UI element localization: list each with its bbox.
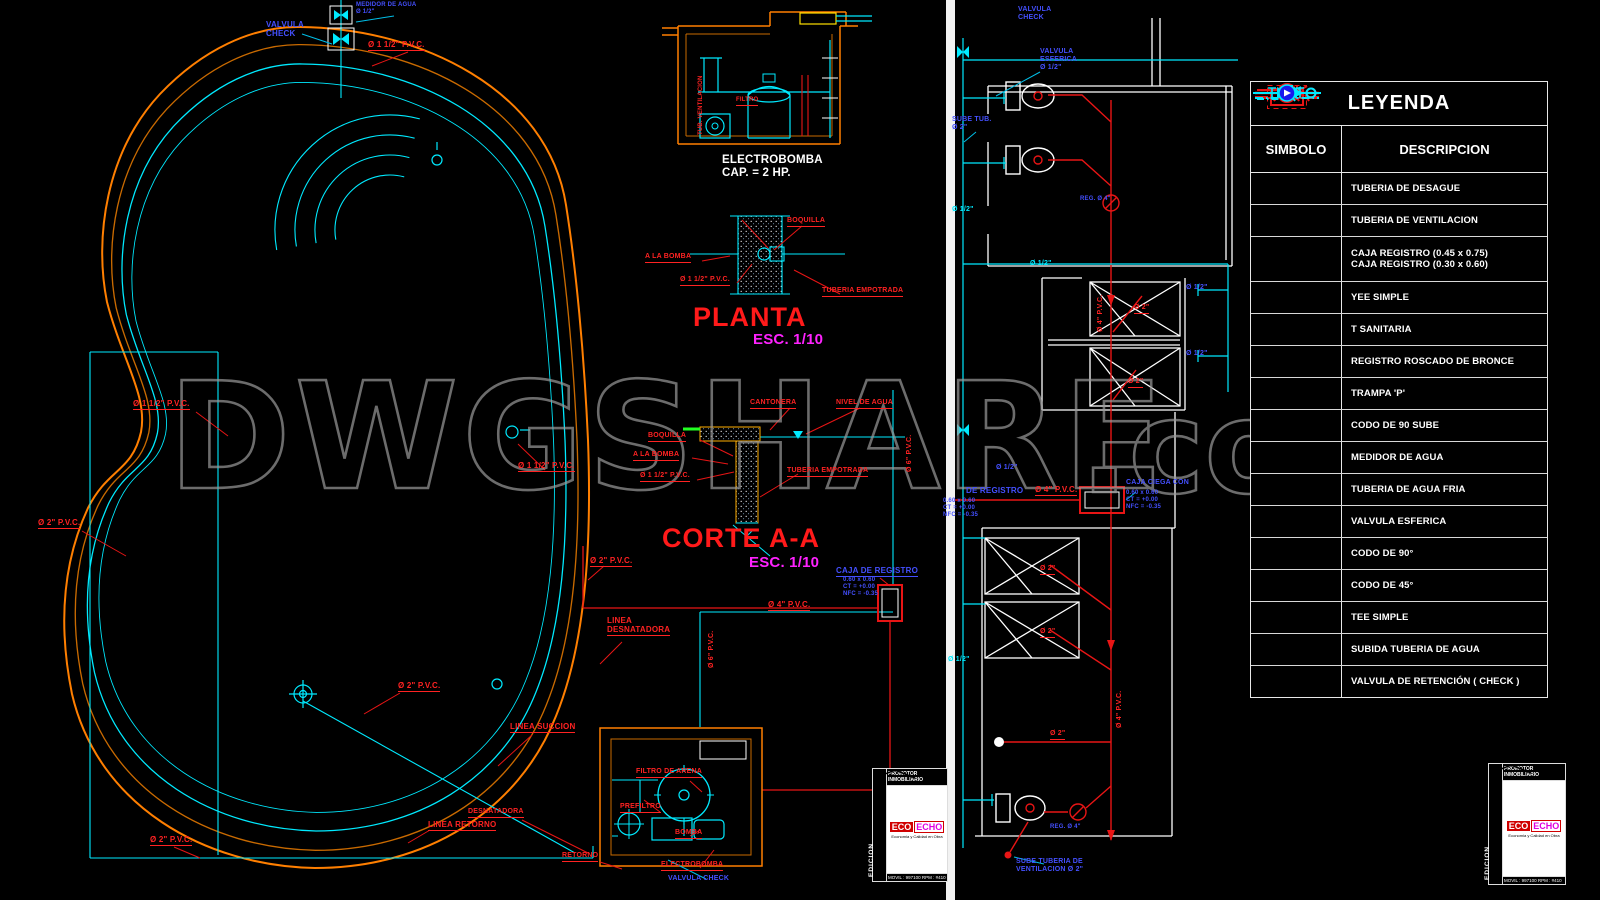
label-d12-d: Ø 1/2" (1186, 350, 1208, 358)
label-pvc2-left: Ø 2" P.V.C. (38, 518, 80, 529)
label-caja-registro-detalle: 0.60 x 0.60 CT = +0.00 NFC = -0.35 (843, 577, 878, 598)
label-nivel-agua: NIVEL DE AGUA (836, 399, 893, 409)
legend-row: CODO DE 90 SUBE (1251, 410, 1547, 442)
corte-title: CORTE A-A (662, 523, 820, 554)
title-block-right: EDICION PROMOTOR INMOBILIARIO ECOECHO Ec… (1488, 763, 1566, 885)
label-d12-a: Ø 1/2" (952, 206, 974, 214)
label-d12-f: Ø 1/2" (948, 656, 970, 664)
title-block-edition-strip: EDICION (1489, 764, 1503, 884)
legend-row: SUBIDA TUBERIA DE AGUA (1251, 634, 1547, 666)
label-pvc4-vert-b: Ø 4" P.V.C. (1116, 691, 1124, 728)
label-a-la-bomba: A LA BOMBA (645, 253, 691, 263)
label-d2-d: Ø 2" (1040, 628, 1055, 638)
label-pvc4-mid: Ø 4" P.V.C. (1035, 485, 1077, 496)
legend-desc: TRAMPA 'P' (1351, 388, 1547, 399)
legend-row: TRAMPA 'P' (1251, 378, 1547, 410)
legend-symbol-valvula-retencion-icon (1251, 82, 1323, 104)
legend-desc: TUBERIA DE DESAGUE (1351, 183, 1547, 194)
legend-row: REGISTRO ROSCADO DE BRONCE (1251, 346, 1547, 378)
legend-row: YEE SIMPLE (1251, 282, 1547, 314)
label-d2-b: Ø 2" (1128, 378, 1143, 388)
logo-roof-icon (873, 769, 917, 779)
legend-desc: TUBERIA DE VENTILACION (1351, 215, 1547, 226)
legend-desc: YEE SIMPLE (1351, 292, 1547, 303)
corte-escala: ESC. 1/10 (749, 554, 819, 571)
legend-row: T SANITARIA (1251, 314, 1547, 346)
label-linea-succion: LINEA SUCCION (510, 722, 575, 733)
label-d12-c: Ø 1/2" (1186, 284, 1208, 292)
label-cantonera: CANTONERA (750, 399, 796, 409)
legend-row: TUBERIA DE VENTILACION (1251, 205, 1547, 237)
label-a-la-bomba-corte: A LA BOMBA (633, 451, 679, 461)
legend-header-row: SIMBOLO DESCRIPCION (1251, 126, 1547, 173)
logo-echo: ECHO (1531, 820, 1561, 832)
legend-row: CAJA REGISTRO (0.45 x 0.75)CAJA REGISTRO… (1251, 237, 1547, 282)
sheet-divider (946, 0, 955, 900)
logo-eco: ECO (890, 822, 914, 832)
title-block-contact: MOVIL : 997100 RPM : #410 (1503, 876, 1565, 884)
label-valvula-esferica: VALVULA ESFERICA Ø 1/2" (1040, 48, 1077, 72)
label-boquilla-planta: BOQUILLA (787, 217, 825, 227)
legend-row: TUBERIA DE AGUA FRIA (1251, 474, 1547, 506)
label-caja-ciega-detalle: 0.60 x 0.60 CT = +0.00 NFC = -0.35 (1126, 490, 1161, 511)
edition-label: EDICION (868, 843, 875, 877)
legend-desc: VALVULA ESFERICA (1351, 516, 1547, 527)
label-retorno: RETORNO (562, 852, 598, 862)
legend-desc: MEDIDOR DE AGUA (1351, 452, 1547, 463)
planta-detail (730, 216, 790, 294)
label-reg4-top: REG. Ø 4" (1080, 196, 1111, 203)
logo-roof-icon (1489, 764, 1533, 774)
legend-desc: VALVULA DE RETENCIÓN ( CHECK ) (1351, 676, 1547, 687)
legend-row: CODO DE 90° (1251, 538, 1547, 570)
codo-sube-dot (994, 737, 1004, 747)
planta-title: PLANTA (693, 302, 807, 333)
label-filtro-seccion: FILTRO (736, 97, 758, 106)
legend-desc: CODO DE 45° (1351, 580, 1547, 591)
label-pvc112-left: Ø 1 1/2" P.V.C. (133, 399, 190, 410)
legend-desc: TEE SIMPLE (1351, 612, 1547, 623)
label-pvc112-mid: Ø 1 1/2" P.V.C. (518, 461, 575, 472)
label-caja-registro: CAJA DE REGISTRO (836, 566, 918, 577)
label-valvula-check-plan: VALVULA CHECK (668, 875, 729, 883)
label-pvc6-corte: Ø 6" P.V.C. (906, 435, 914, 472)
label-pvc112-corte: Ø 1 1/2" P.V.C. (640, 472, 690, 482)
label-linea-desnatadora: LINEA DESNATADORA (607, 616, 670, 636)
label-pvc6-drop: Ø 6" P.V.C. (708, 631, 716, 668)
title-block-left: EDICION PROMOTOR INMOBILIARIO ECOECHO Ec… (872, 768, 948, 882)
label-sube-tub: SUBE TUB. Ø 2" (952, 116, 992, 132)
legend-desc: T SANITARIA (1351, 324, 1547, 335)
label-pvc2-bottom: Ø 2" P.V.C. (150, 835, 192, 846)
label-valvula-check: VALVULA CHECK (266, 20, 304, 38)
legend-row: VALVULA DE RETENCIÓN ( CHECK ) (1251, 666, 1547, 697)
label-pvc2-right: Ø 2" P.V.C. (590, 556, 632, 567)
edition-label: EDICION (1484, 846, 1491, 880)
label-electrobomba-plan: ELECTROBOMBA (661, 861, 723, 871)
legend-desc: TUBERIA DE AGUA FRIA (1351, 484, 1547, 495)
label-tuberia-empotrada-corte: TUBERIA EMPOTRADA (787, 467, 868, 477)
logo-tagline: Economia y Calidad en Obra (1508, 833, 1559, 838)
legend-desc2: CAJA REGISTRO (0.30 x 0.60) (1351, 259, 1547, 270)
legend-table: LEYENDA SIMBOLO DESCRIPCION TUBERIA DE D… (1250, 81, 1548, 698)
logo-tagline: Economia y Calidad en Obra (891, 834, 942, 839)
label-filtro-arena: FILTRO DE ARENA (636, 768, 702, 778)
label-d12-b: Ø 1/2" (1030, 260, 1052, 268)
label-bomba: BOMBA (675, 829, 702, 839)
company-logo: ECOECHO Economia y Calidad en Obra (887, 786, 947, 873)
vent-riser-dot (1005, 852, 1012, 859)
label-medidor-agua: MEDIDOR DE AGUA Ø 1/2" (356, 2, 416, 16)
label-tuberia-empotrada-planta: TUBERIA EMPOTRADA (822, 287, 903, 297)
label-caja-ciega: CAJA CIEGA CON (1126, 479, 1189, 487)
legend-row: TUBERIA DE DESAGUE (1251, 173, 1547, 205)
pump-house-plan (600, 728, 762, 866)
label-pvc112-planta: Ø 1 1/2" P.V.C. (680, 276, 730, 286)
label-d2-a: Ø 2" (1134, 304, 1149, 314)
title-block-contact: MOVIL : 997100 RPM : #410 (887, 873, 947, 881)
legend-desc: SUBIDA TUBERIA DE AGUA (1351, 644, 1547, 655)
label-pvc2-mid: Ø 2" P.V.C. (398, 681, 440, 692)
electrobomba-title: ELECTROBOMBA CAP. = 2 HP. (722, 154, 823, 180)
label-desnatadora: DESNATADORA (468, 808, 524, 818)
watermark: DWGSHARE .com (168, 351, 1426, 523)
label-pvc4-line: Ø 4" P.V.C. (768, 600, 810, 611)
label-pvc112-top: Ø 1 1/2" P.V.C. (368, 40, 425, 51)
label-reg4-bottom: REG. Ø 4" (1050, 824, 1081, 831)
pool-steps (275, 115, 420, 250)
legend-col-descripcion: DESCRIPCION (1342, 126, 1547, 172)
planta-escala: ESC. 1/10 (753, 331, 823, 348)
legend-desc: CAJA REGISTRO (0.45 x 0.75) (1351, 248, 1547, 259)
legend-desc: CODO DE 90° (1351, 548, 1547, 559)
label-linea-retorno: LINEA RETORNO (428, 820, 496, 831)
label-de-registro: DE REGISTRO (966, 486, 1023, 495)
logo-echo: ECHO (914, 821, 944, 833)
company-logo: ECOECHO Economia y Calidad en Obra (1503, 781, 1565, 876)
legend-row: MEDIDOR DE AGUA (1251, 442, 1547, 474)
cad-sheet: DWGSHARE .com MEDIDOR DE AGUA Ø 1/2" VAL… (0, 0, 1600, 900)
label-boquilla-corte: BOQUILLA (648, 432, 686, 442)
legend-desc: CODO DE 90 SUBE (1351, 420, 1547, 431)
label-registro-detalle: 0.60 x 0.60 CT = +0.00 NFC = -0.35 (943, 498, 978, 519)
label-d2-e: Ø 2" (1050, 730, 1065, 740)
title-block-edition-strip: EDICION (873, 769, 887, 881)
label-prefiltro: PREFILTRO (620, 803, 661, 813)
label-valvula-top: VALVULA CHECK (1018, 6, 1051, 22)
label-pvc4-vert-a: Ø 4" P.V.C. (1097, 295, 1105, 332)
label-d12-e: Ø 1/2" (996, 464, 1018, 472)
legend-row: VALVULA ESFERICA (1251, 506, 1547, 538)
caja-registro-box (878, 585, 902, 621)
legend-desc: REGISTRO ROSCADO DE BRONCE (1351, 356, 1547, 367)
legend-row: CODO DE 45° (1251, 570, 1547, 602)
label-sube-ventilacion: SUBE TUBERIA DE VENTILACION Ø 2" (1016, 858, 1083, 874)
legend-row: TEE SIMPLE (1251, 602, 1547, 634)
label-d2-c: Ø 2" (1040, 565, 1055, 575)
logo-eco: ECO (1507, 821, 1531, 831)
legend-col-simbolo: SIMBOLO (1251, 126, 1342, 172)
label-tub-ventilacion: TUB. VENTILACION (698, 75, 705, 135)
pump-house-section (662, 12, 872, 144)
